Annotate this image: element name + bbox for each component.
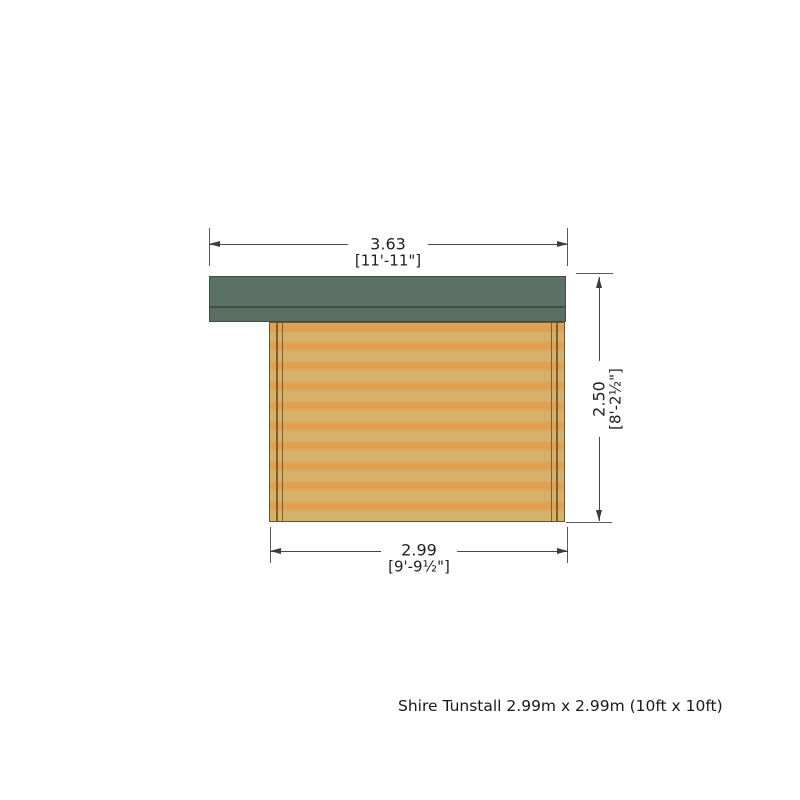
- extension-line: [567, 527, 568, 563]
- arrowhead-down-icon: [596, 510, 602, 521]
- arrowhead-left-icon: [209, 241, 220, 247]
- dimension-bottom-imperial: [9'-9½"]: [388, 560, 450, 576]
- extension-line: [566, 522, 612, 523]
- extension-line: [270, 527, 271, 563]
- roof-fascia-board: [210, 306, 565, 321]
- extension-line: [567, 228, 568, 266]
- dimension-label-bottom: 2.99 [9'-9½"]: [381, 543, 457, 576]
- corner-trim-left-inner: [282, 323, 283, 521]
- extension-line: [576, 273, 613, 274]
- elevation-diagram: 3.63 [11'-11"] 2.50 [8'-2½"] 2.99 [9'-9½…: [0, 0, 800, 800]
- extension-line: [209, 228, 210, 266]
- arrowhead-right-icon: [557, 548, 568, 554]
- wall-panel: [269, 322, 565, 522]
- dimension-label-right: 2.50 [8'-2½"]: [592, 361, 625, 437]
- arrowhead-up-icon: [596, 277, 602, 288]
- arrowhead-right-icon: [557, 241, 568, 247]
- arrowhead-left-icon: [270, 548, 281, 554]
- dimension-label-top: 3.63 [11'-11"]: [348, 237, 428, 270]
- product-caption: Shire Tunstall 2.99m x 2.99m (10ft x 10f…: [398, 697, 723, 715]
- dimension-right-imperial: [8'-2½"]: [609, 368, 625, 430]
- dimension-top-imperial: [11'-11"]: [355, 254, 421, 270]
- corner-trim-left-outer: [276, 323, 278, 521]
- roof-panel: [209, 276, 566, 322]
- corner-trim-right-inner: [551, 323, 552, 521]
- corner-trim-right-outer: [556, 323, 558, 521]
